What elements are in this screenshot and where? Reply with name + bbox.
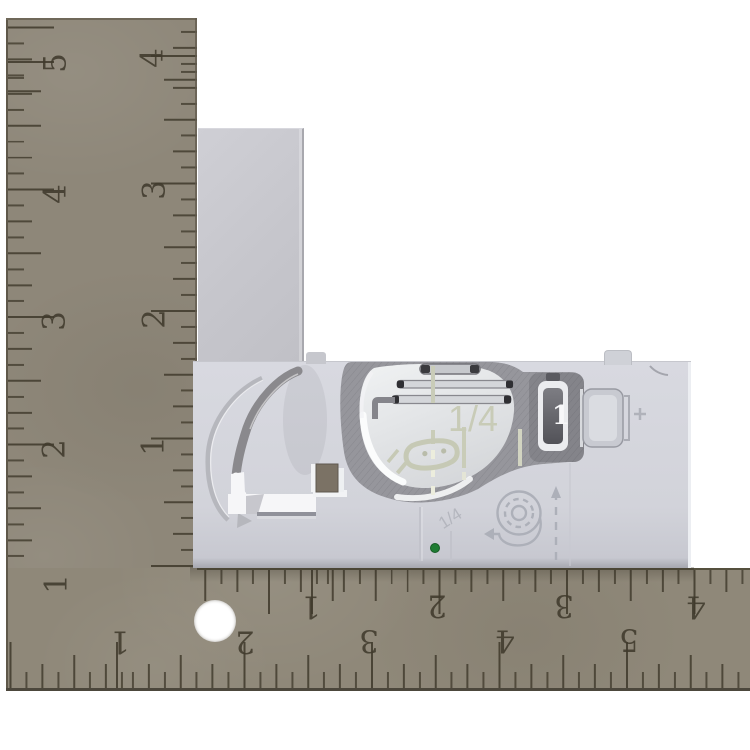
plate-shadow (190, 567, 694, 582)
square-hole (316, 464, 338, 492)
ruler-number-horizontal_inner: 4 (686, 591, 706, 622)
ruler-number-horizontal_outer: 3 (359, 625, 379, 656)
ruler-number-vertical_inner: 3 (140, 180, 171, 200)
up-arrow-dashed-icon (551, 486, 561, 560)
ruler-number-vertical_inner: 2 (140, 309, 171, 329)
ruler-number-horizontal_inner: 1 (301, 591, 321, 622)
ruler-bottom-edge (6, 688, 750, 691)
latch-button (580, 389, 629, 447)
ruler-number-horizontal_outer: 2 (235, 626, 255, 657)
ruler-number-vertical_outer: 1 (42, 574, 73, 594)
ruler-hang-hole (194, 600, 236, 642)
cover-latch: 1 (529, 373, 584, 462)
ruler-top-edge (6, 18, 197, 20)
bobbin-thread-icon (484, 492, 541, 546)
ruler-number-vertical_inner: 1 (139, 436, 170, 456)
quarter-inch-label: 1/4 (448, 398, 498, 439)
feed-slot-1 (397, 381, 513, 389)
plus-mark (634, 408, 646, 420)
corner-notch (650, 366, 668, 375)
ruler-number-horizontal_outer: 1 (110, 626, 130, 657)
ruler-number-horizontal_inner: 3 (554, 590, 574, 621)
green-dot-marker (431, 544, 440, 553)
ruler-number-horizontal_inner: 2 (427, 590, 447, 621)
ruler-number-vertical_outer: 3 (40, 311, 71, 331)
needle-plate-upper-arm (198, 128, 304, 365)
needle-plate-details: 1/4 1 (193, 361, 691, 567)
ruler-number-vertical_outer: 2 (40, 439, 71, 459)
ruler-number-vertical_outer: 4 (41, 184, 72, 204)
needle-slot-top (420, 364, 480, 374)
left-arrow-icon (484, 528, 494, 540)
ruler-number-horizontal_outer: 5 (619, 624, 639, 655)
ruler-number-horizontal_outer: 4 (495, 625, 515, 656)
ruler-left-edge (6, 18, 8, 690)
latch-number-label: 1 (552, 401, 570, 431)
product-photo: 1/4 1 (0, 0, 750, 750)
quarter-inch-small-label: 1/4 (435, 504, 465, 533)
ruler-number-vertical_inner: 4 (138, 48, 169, 68)
ruler-number-vertical_outer: 5 (41, 53, 72, 73)
